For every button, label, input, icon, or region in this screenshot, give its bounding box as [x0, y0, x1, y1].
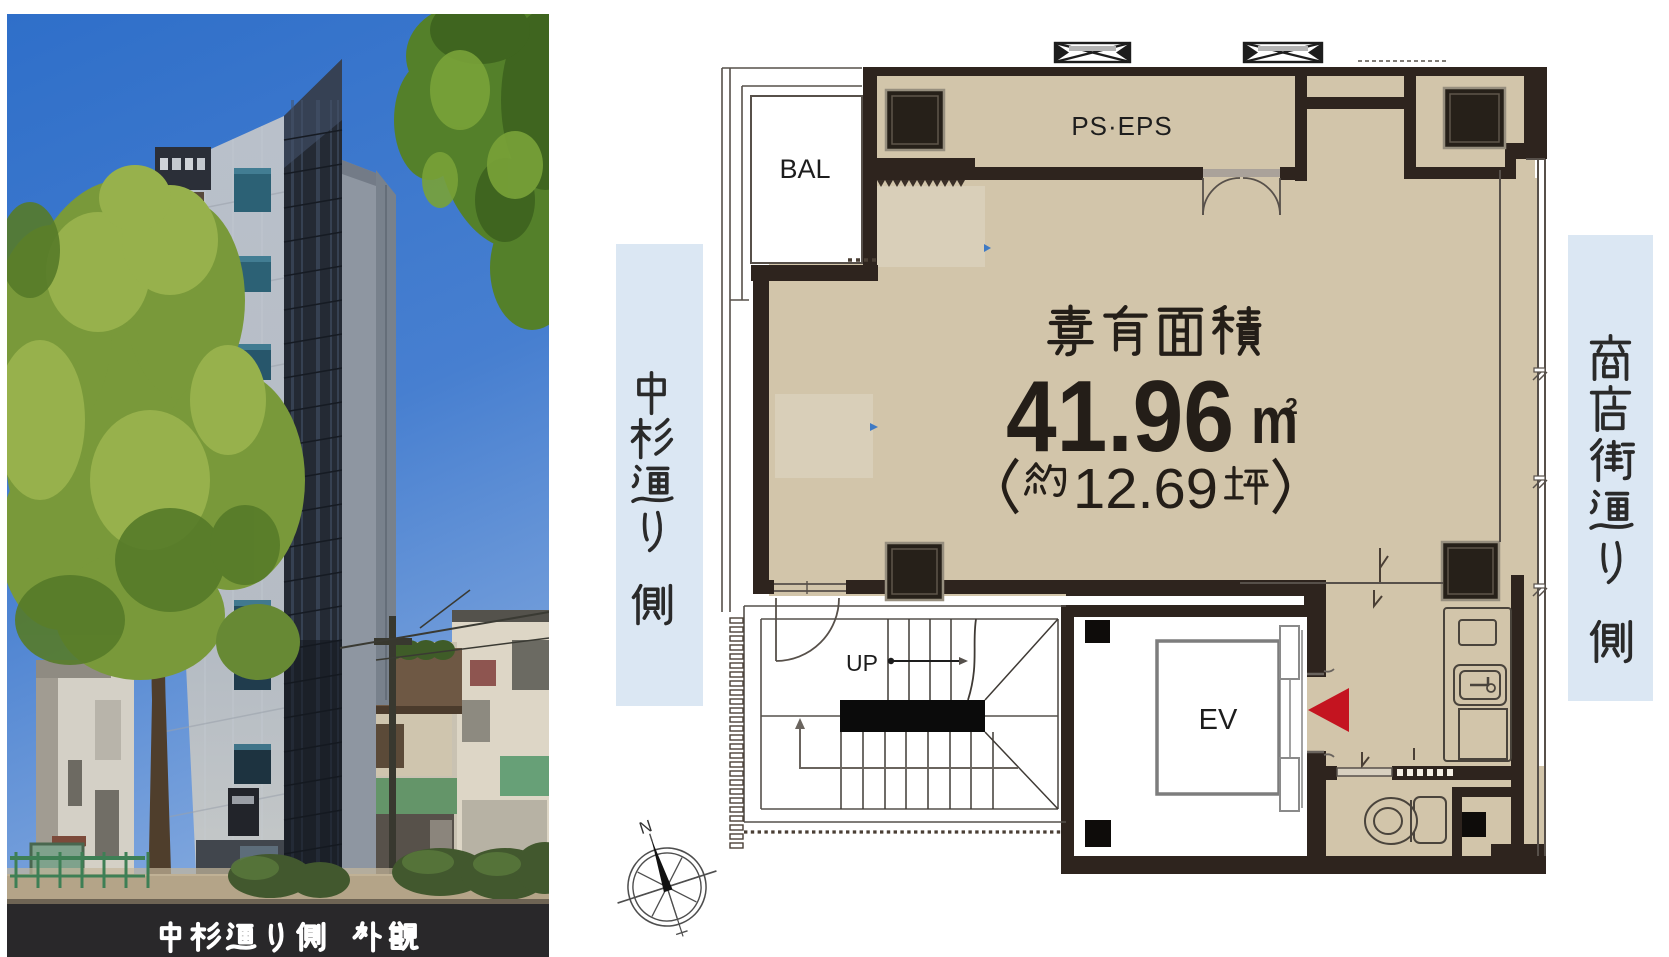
svg-text:PS·EPS: PS·EPS [1071, 111, 1172, 141]
svg-text:12.69: 12.69 [1073, 457, 1218, 521]
svg-text:2: 2 [1285, 393, 1298, 419]
svg-text:EV: EV [1199, 704, 1238, 736]
svg-text:BAL: BAL [779, 154, 830, 184]
svg-text:UP: UP [846, 650, 878, 676]
